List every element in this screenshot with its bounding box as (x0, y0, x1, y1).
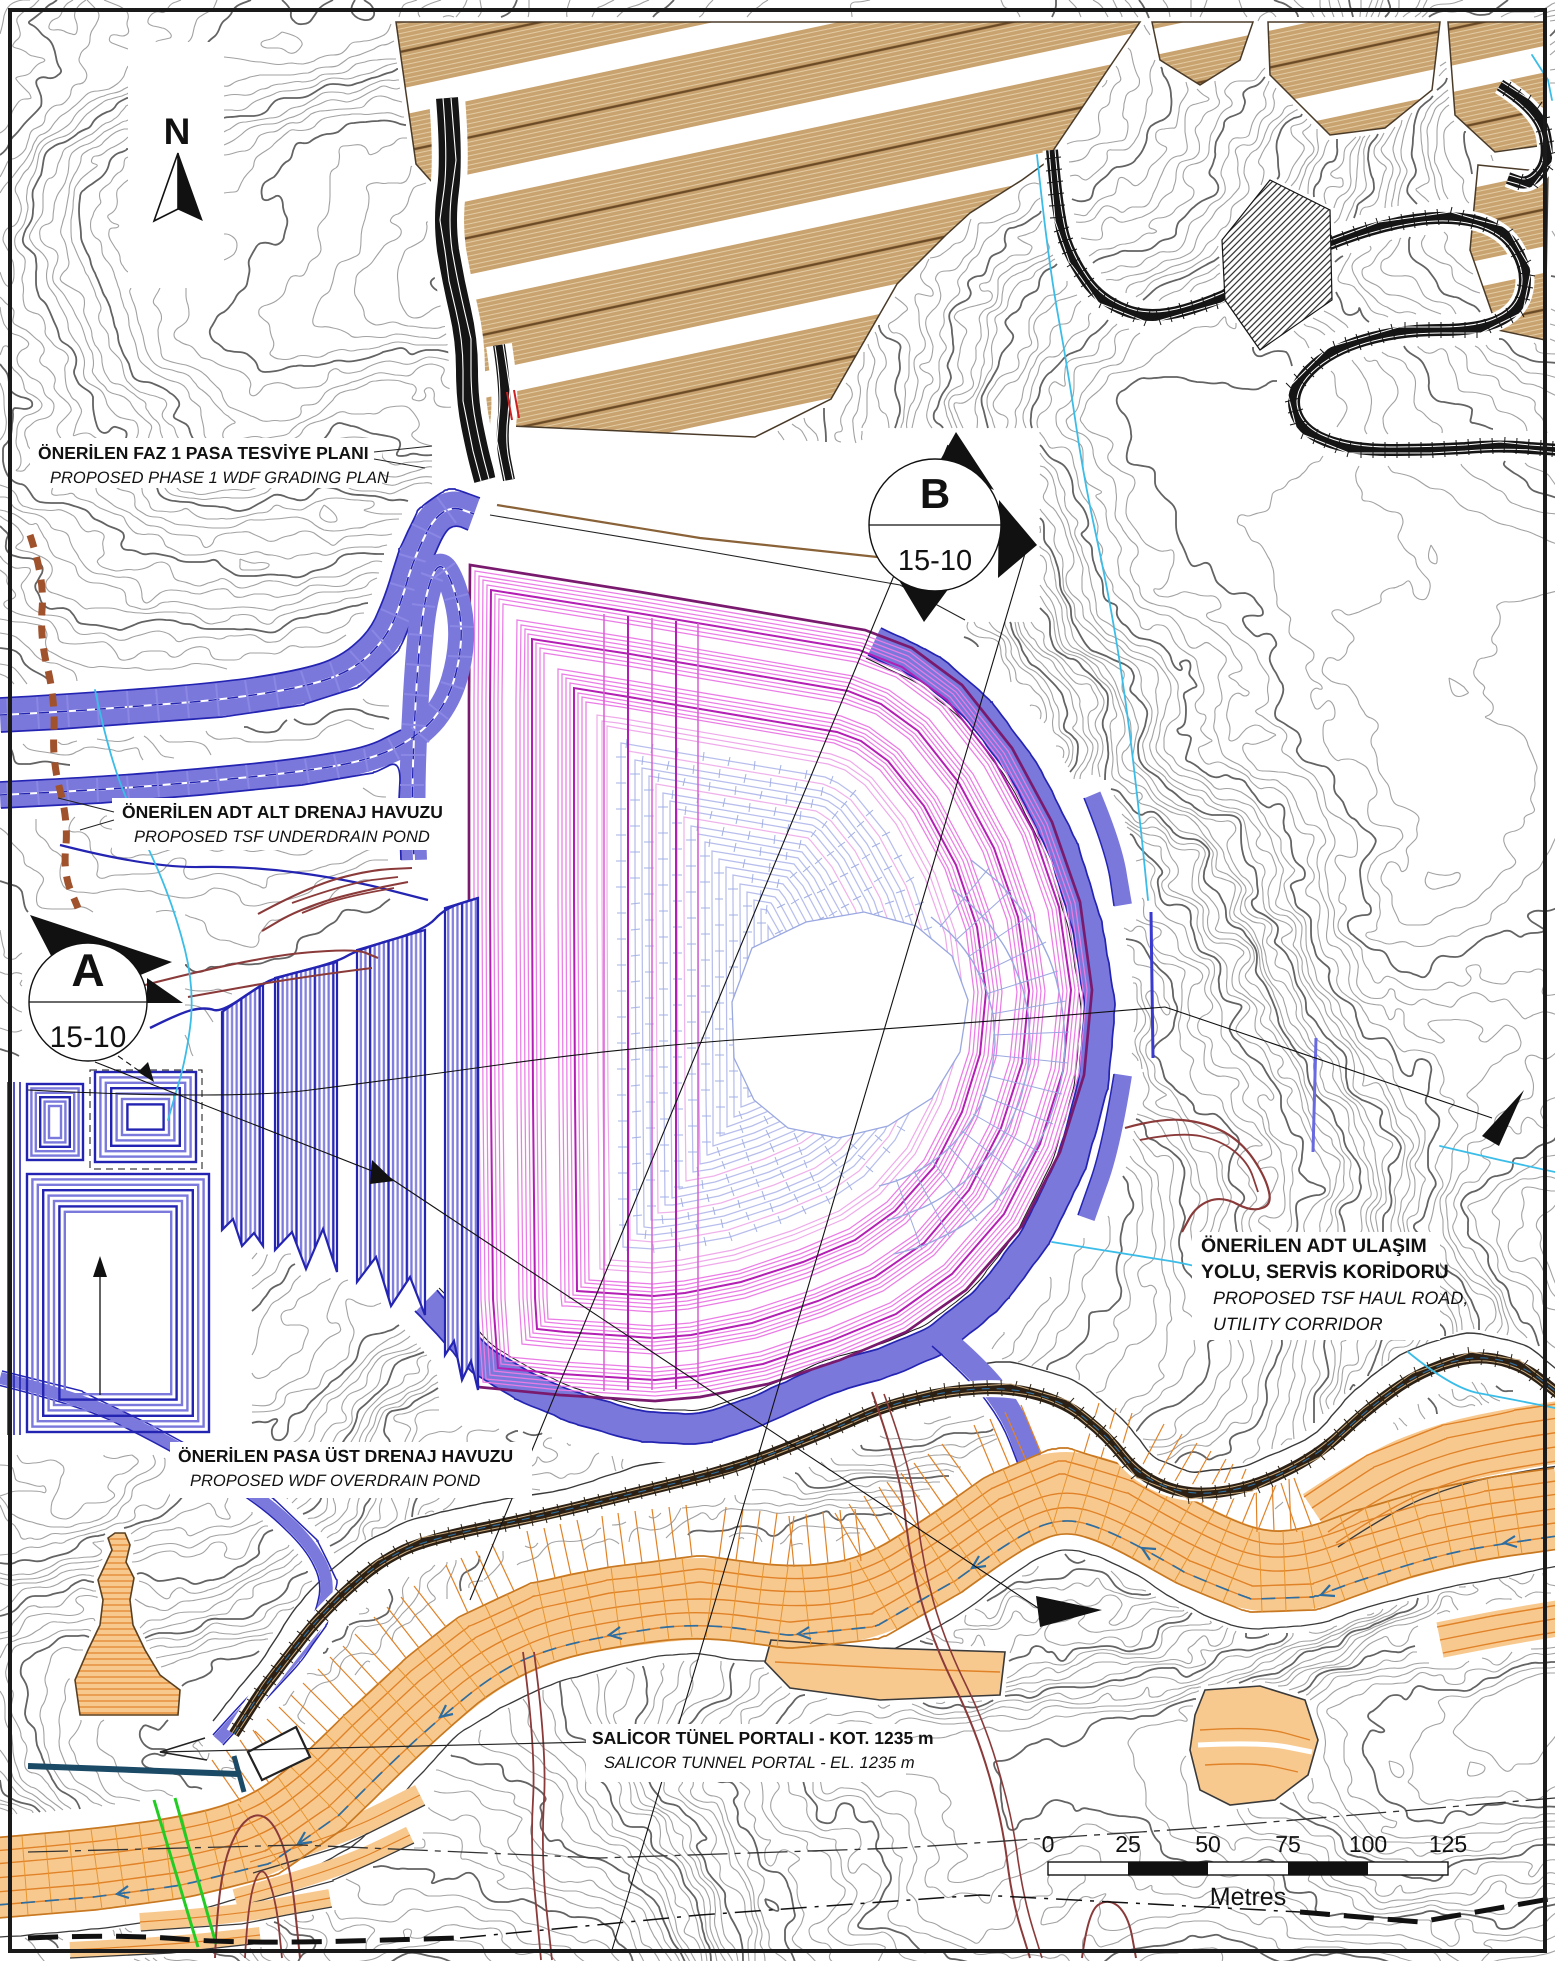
svg-text:125: 125 (1429, 1831, 1467, 1857)
svg-text:UTILITY CORRIDOR: UTILITY CORRIDOR (1213, 1314, 1383, 1334)
svg-text:75: 75 (1275, 1831, 1301, 1857)
svg-text:ÖNERİLEN PASA ÜST DRENAJ HAVUZ: ÖNERİLEN PASA ÜST DRENAJ HAVUZU (178, 1446, 513, 1466)
svg-text:ÖNERİLEN ADT ALT DRENAJ HAVUZU: ÖNERİLEN ADT ALT DRENAJ HAVUZU (122, 802, 443, 822)
svg-text:B: B (920, 470, 950, 517)
svg-text:A: A (71, 944, 104, 996)
svg-text:15-10: 15-10 (898, 545, 972, 577)
svg-text:PROPOSED WDF OVERDRAIN POND: PROPOSED WDF OVERDRAIN POND (190, 1472, 480, 1490)
svg-text:YOLU, SERVİS KORİDORU: YOLU, SERVİS KORİDORU (1201, 1261, 1449, 1283)
svg-text:25: 25 (1115, 1831, 1141, 1857)
svg-text:ÖNERİLEN FAZ 1 PASA TESVİYE PL: ÖNERİLEN FAZ 1 PASA TESVİYE PLANI (38, 443, 369, 463)
svg-text:15-10: 15-10 (50, 1021, 127, 1054)
svg-text:ÖNERİLEN ADT ULAŞIM: ÖNERİLEN ADT ULAŞIM (1201, 1235, 1427, 1257)
svg-text:PROPOSED TSF HAUL ROAD,: PROPOSED TSF HAUL ROAD, (1213, 1288, 1468, 1308)
svg-text:N: N (164, 111, 191, 152)
svg-text:50: 50 (1195, 1831, 1221, 1857)
svg-text:Metres: Metres (1210, 1883, 1286, 1911)
svg-text:SALICOR TUNNEL PORTAL - EL. 1: SALICOR TUNNEL PORTAL - EL. 1235 m (604, 1754, 915, 1772)
svg-text:SALİCOR TÜNEL PORTALI - KOT. 1: SALİCOR TÜNEL PORTALI - KOT. 1235 m (592, 1728, 934, 1748)
svg-text:PROPOSED PHASE 1 WDF GRADING P: PROPOSED PHASE 1 WDF GRADING PLAN (50, 469, 389, 487)
svg-text:100: 100 (1349, 1831, 1387, 1857)
svg-text:0: 0 (1042, 1831, 1055, 1857)
svg-text:PROPOSED TSF UNDERDRAIN POND: PROPOSED TSF UNDERDRAIN POND (134, 828, 430, 846)
